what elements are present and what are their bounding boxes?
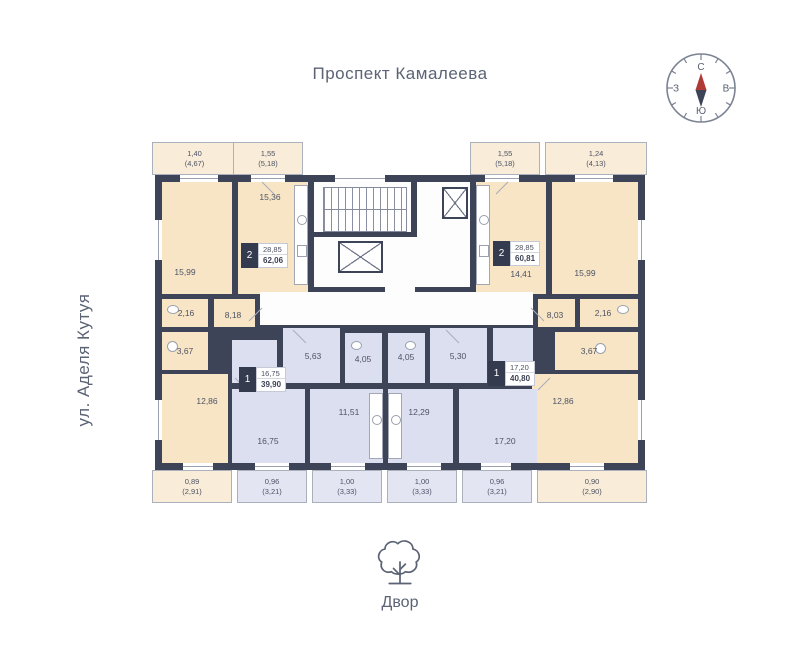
compass-icon: С Ю З В	[663, 50, 739, 126]
apartment-badge-bottom-right-1room[interactable]: 1 17,20 40,80	[488, 361, 535, 386]
window	[575, 175, 613, 182]
area-label: 15,99	[174, 267, 195, 277]
street-label-top: Проспект Камалеева	[150, 64, 650, 84]
balcony-total: (3,21)	[487, 487, 507, 496]
rooms-count: 2	[241, 243, 258, 268]
area-label: 11,51	[339, 407, 360, 417]
balcony-door	[183, 463, 213, 470]
balcony: 1,00 (3,33)	[387, 470, 457, 503]
area-label: 8,18	[225, 310, 242, 320]
room-right-living	[532, 374, 638, 463]
balcony: 0,96 (3,21)	[237, 470, 307, 503]
balcony-door	[570, 463, 604, 470]
balcony-total: (4,67)	[185, 159, 205, 168]
balcony-area: 0,96	[265, 477, 280, 486]
balcony: 1,24 (4,13)	[545, 142, 647, 175]
toilet-icon	[617, 305, 629, 314]
room-left-living	[162, 374, 228, 463]
balcony: 0,89 (2,91)	[152, 470, 232, 503]
area-label: 2,16	[178, 308, 195, 318]
balcony-total: (3,33)	[337, 487, 357, 496]
balcony-area: 1,40	[187, 149, 202, 158]
window	[155, 400, 162, 440]
stove-icon	[479, 245, 489, 257]
yard-label: Двор	[300, 594, 500, 612]
building-outline: 15,99 15,36 2,16 3,67 8,18 12,86 14,41 1…	[155, 175, 645, 470]
sink-icon	[479, 215, 489, 225]
area-label: 17,20	[494, 436, 515, 446]
area-label: 5,63	[305, 351, 322, 361]
sink-icon	[372, 415, 382, 425]
balcony-area: 0,90	[585, 477, 600, 486]
window	[155, 220, 162, 260]
area-label: 12,29	[408, 407, 429, 417]
area-label: 4,05	[398, 352, 415, 362]
core-wall	[411, 182, 417, 237]
area-label: 8,03	[547, 310, 564, 320]
kitchen-counter	[369, 393, 383, 459]
balcony-total: (4,13)	[586, 159, 606, 168]
balcony-area: 1,00	[415, 477, 430, 486]
compass-south-label: Ю	[696, 106, 706, 117]
balcony-area: 0,96	[490, 477, 505, 486]
balcony-door	[255, 463, 289, 470]
balcony-total: (5,18)	[258, 159, 278, 168]
kitchen-counter	[294, 185, 308, 285]
living-area: 17,20	[506, 362, 534, 373]
sink-icon	[297, 215, 307, 225]
rooms-count: 2	[493, 241, 510, 266]
area-label: 16,75	[257, 436, 278, 446]
balcony: 1,00 (3,33)	[312, 470, 382, 503]
living-area: 28,85	[511, 242, 539, 253]
living-area: 16,75	[257, 368, 285, 379]
balcony-total: (2,90)	[582, 487, 602, 496]
stove-icon	[297, 245, 307, 257]
sink-icon	[391, 415, 401, 425]
street-label-left: ул. Аделя Кутуя	[74, 294, 94, 427]
total-area: 40,80	[506, 373, 534, 385]
apartment-badge-bottom-left-1room[interactable]: 1 16,75 39,90	[239, 367, 286, 392]
area-label: 12,86	[552, 396, 573, 406]
balcony-total: (2,91)	[182, 487, 202, 496]
balcony-area: 1,55	[498, 149, 513, 158]
balcony: 1,40 (4,67)	[152, 142, 237, 175]
tree-icon	[372, 534, 428, 590]
rooms-count: 1	[239, 367, 256, 392]
total-area: 39,90	[257, 379, 285, 391]
toilet-icon	[351, 341, 362, 350]
elevator-shaft	[442, 187, 468, 219]
area-label: 2,16	[595, 308, 612, 318]
window	[335, 175, 385, 182]
compass-rose: С Ю З В	[663, 50, 739, 126]
balcony: 0,90 (2,90)	[537, 470, 647, 503]
compass-east-label: В	[723, 84, 730, 95]
elevator-shaft	[338, 241, 383, 273]
floor-plan: 1,40 (4,67) 1,55 (5,18) 1,55 (5,18) 1,24…	[150, 130, 650, 510]
kitchen-counter	[388, 393, 402, 459]
window	[180, 175, 218, 182]
balcony-door	[407, 463, 441, 470]
room-left-bedroom	[162, 182, 232, 294]
area-label: 15,36	[259, 192, 280, 202]
core-door-gap	[385, 287, 415, 292]
balcony-door	[331, 463, 365, 470]
room-br-living	[459, 389, 537, 463]
window	[638, 400, 645, 440]
apartment-badge-right-2room[interactable]: 2 28,85 60,81	[493, 241, 540, 266]
compass-north-label: С	[697, 62, 704, 73]
balcony-total: (3,21)	[262, 487, 282, 496]
balcony-total: (5,18)	[495, 159, 515, 168]
total-area: 62,06	[259, 255, 287, 267]
rooms-count: 1	[488, 361, 505, 386]
room-bl-living	[232, 389, 305, 463]
kitchen-counter	[476, 185, 490, 285]
compass-west-label: З	[673, 84, 679, 95]
area-label: 12,86	[196, 396, 217, 406]
area-label: 3,67	[177, 346, 194, 356]
corridor	[260, 292, 533, 325]
area-label: 14,41	[510, 269, 531, 279]
balcony: 0,96 (3,21)	[462, 470, 532, 503]
staircase-divider	[323, 209, 407, 210]
area-label: 3,67	[581, 346, 598, 356]
apartment-badge-left-2room[interactable]: 2 28,85 62,06	[241, 243, 288, 268]
area-label: 5,30	[450, 351, 467, 361]
area-label: 4,05	[355, 354, 372, 364]
living-area: 28,85	[259, 244, 287, 255]
window	[638, 220, 645, 260]
balcony: 1,55 (5,18)	[233, 142, 303, 175]
balcony-area: 1,24	[589, 149, 604, 158]
window	[485, 175, 519, 182]
core-wall	[314, 232, 414, 237]
balcony: 1,55 (5,18)	[470, 142, 540, 175]
compass-needle-north	[696, 73, 707, 90]
window	[251, 175, 285, 182]
balcony-door	[481, 463, 511, 470]
floorplan-page: { "texts": { "street_top": "Проспект Кам…	[0, 0, 800, 672]
balcony-area: 1,00	[340, 477, 355, 486]
balcony-area: 0,89	[185, 477, 200, 486]
compass-needle-south	[696, 90, 707, 107]
area-label: 15,99	[574, 268, 595, 278]
toilet-icon	[405, 341, 416, 350]
total-area: 60,81	[511, 253, 539, 265]
balcony-area: 1,55	[261, 149, 276, 158]
balcony-total: (3,33)	[412, 487, 432, 496]
